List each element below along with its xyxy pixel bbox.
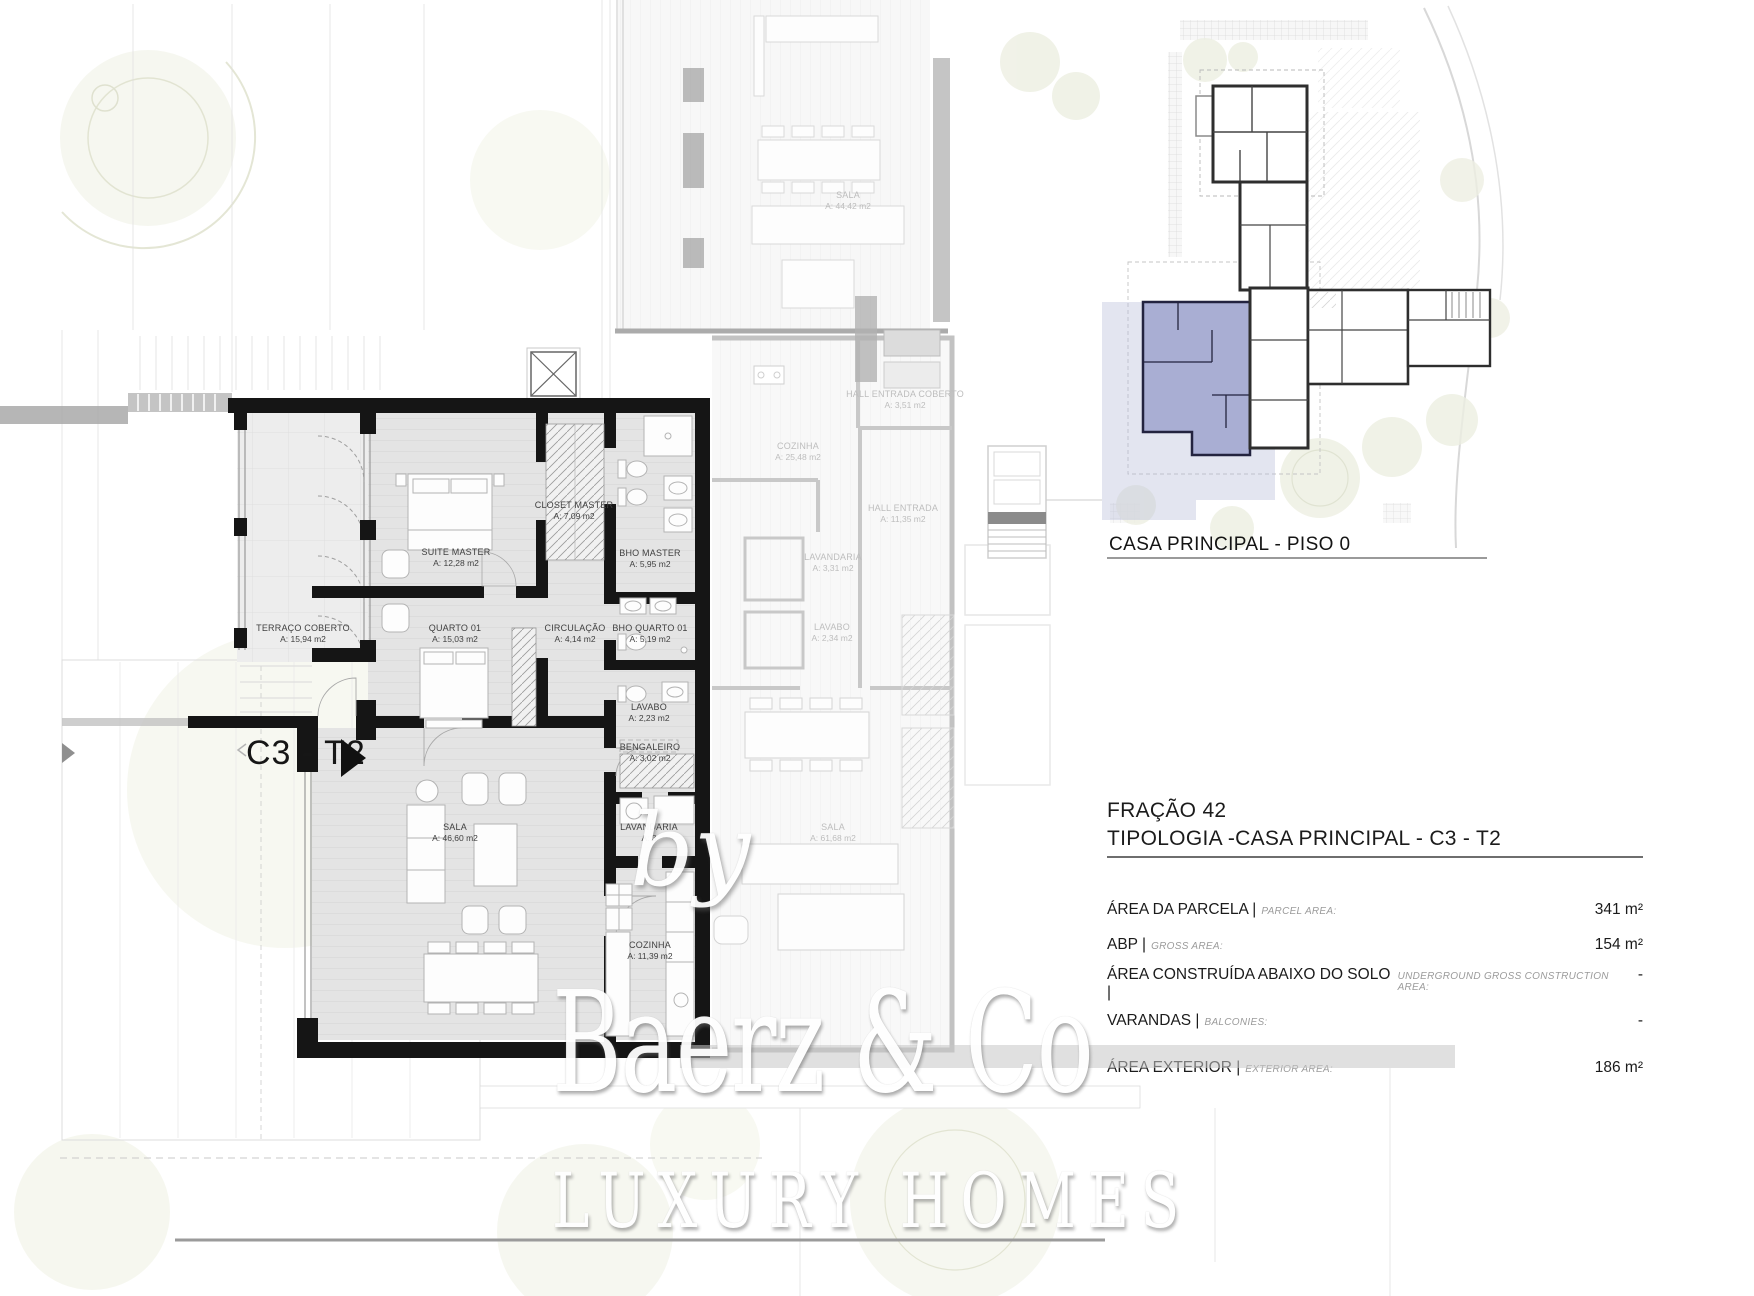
context-room-label-hall-entrada: HALL ENTRADAA: 11,35 m2 — [868, 504, 938, 524]
area-row-parcel: ÁREA DA PARCELA | PARCEL AREA: 341 m² — [1107, 901, 1643, 919]
keyplan-caption: CASA PRINCIPAL - PISO 0 — [1109, 534, 1351, 556]
watermark-by: by — [630, 792, 751, 909]
keyplan-building-upper — [1213, 86, 1307, 182]
context-room-label-sala-top: SALAA: 44,42 m2 — [825, 191, 871, 211]
entry-direction-arrow-icon — [62, 743, 75, 763]
entry-path — [62, 718, 188, 726]
access-ramp — [0, 406, 128, 424]
room-label-closet-master: CLOSET MASTERA: 7,09 m2 — [535, 501, 613, 521]
room-label-bengaleiro: BENGALEIROA: 3,02 m2 — [620, 743, 681, 763]
context-room-label-lavabo: LAVABOA: 2,34 m2 — [811, 623, 852, 643]
room-label-sala: SALAA: 46,60 m2 — [432, 823, 478, 843]
context-unit-top — [615, 0, 950, 331]
room-label-quarto-01: QUARTO 01A: 15,03 m2 — [429, 624, 482, 644]
unit-pointer-arrow-icon — [341, 739, 366, 777]
context-room-label-cozinha: COZINHAA: 25,48 m2 — [775, 442, 821, 462]
room-label-bho-quarto-01: BHO QUARTO 01A: 5,19 m2 — [612, 624, 687, 644]
context-room-label-sala-right: SALAA: 61,68 m2 — [810, 823, 856, 843]
room-label-circulacao: CIRCULAÇÃOA: 4,14 m2 — [544, 624, 605, 644]
room-label-lavabo: LAVABOA: 2,23 m2 — [628, 703, 669, 723]
floorplan-sheet: SUITE MASTERA: 12,28 m2 CLOSET MASTERA: … — [0, 0, 1754, 1296]
context-room-label-hall-entrada-coberto: HALL ENTRADA COBERTOA: 3,51 m2 — [846, 390, 964, 410]
context-unit-right — [712, 336, 954, 1052]
room-label-suite-master: SUITE MASTERA: 12,28 m2 — [422, 548, 491, 568]
fraction-title: FRAÇÃO 42 — [1107, 799, 1226, 823]
keyplan-highlighted-unit — [1143, 302, 1250, 455]
key-plan — [988, 6, 1510, 558]
typology-title: TIPOLOGIA -CASA PRINCIPAL - C3 - T2 — [1107, 827, 1501, 851]
area-row-gross: ABP | GROSS AREA: 154 m² — [1107, 936, 1643, 954]
watermark-brand: Baerz & Co — [552, 962, 1093, 1125]
room-label-cozinha: COZINHAA: 11,39 m2 — [627, 941, 672, 961]
keyplan-caption-underline — [1107, 557, 1487, 559]
watermark-tagline: LUXURY HOMES — [552, 1156, 1191, 1245]
context-room-label-lavandaria: LAVANDARIAA: 3,31 m2 — [804, 553, 862, 573]
area-row-balconies: VARANDAS | BALCONIES: - — [1107, 1012, 1643, 1030]
area-row-underground: ÁREA CONSTRUÍDA ABAIXO DO SOLO | UNDERGR… — [1107, 966, 1643, 1002]
entry-steps — [128, 393, 232, 412]
room-label-bho-master: BHO MASTERA: 5,95 m2 — [619, 549, 681, 569]
title-underline — [1107, 856, 1643, 858]
room-label-terraco-coberto: TERRAÇO COBERTOA: 15,94 m2 — [256, 624, 350, 644]
